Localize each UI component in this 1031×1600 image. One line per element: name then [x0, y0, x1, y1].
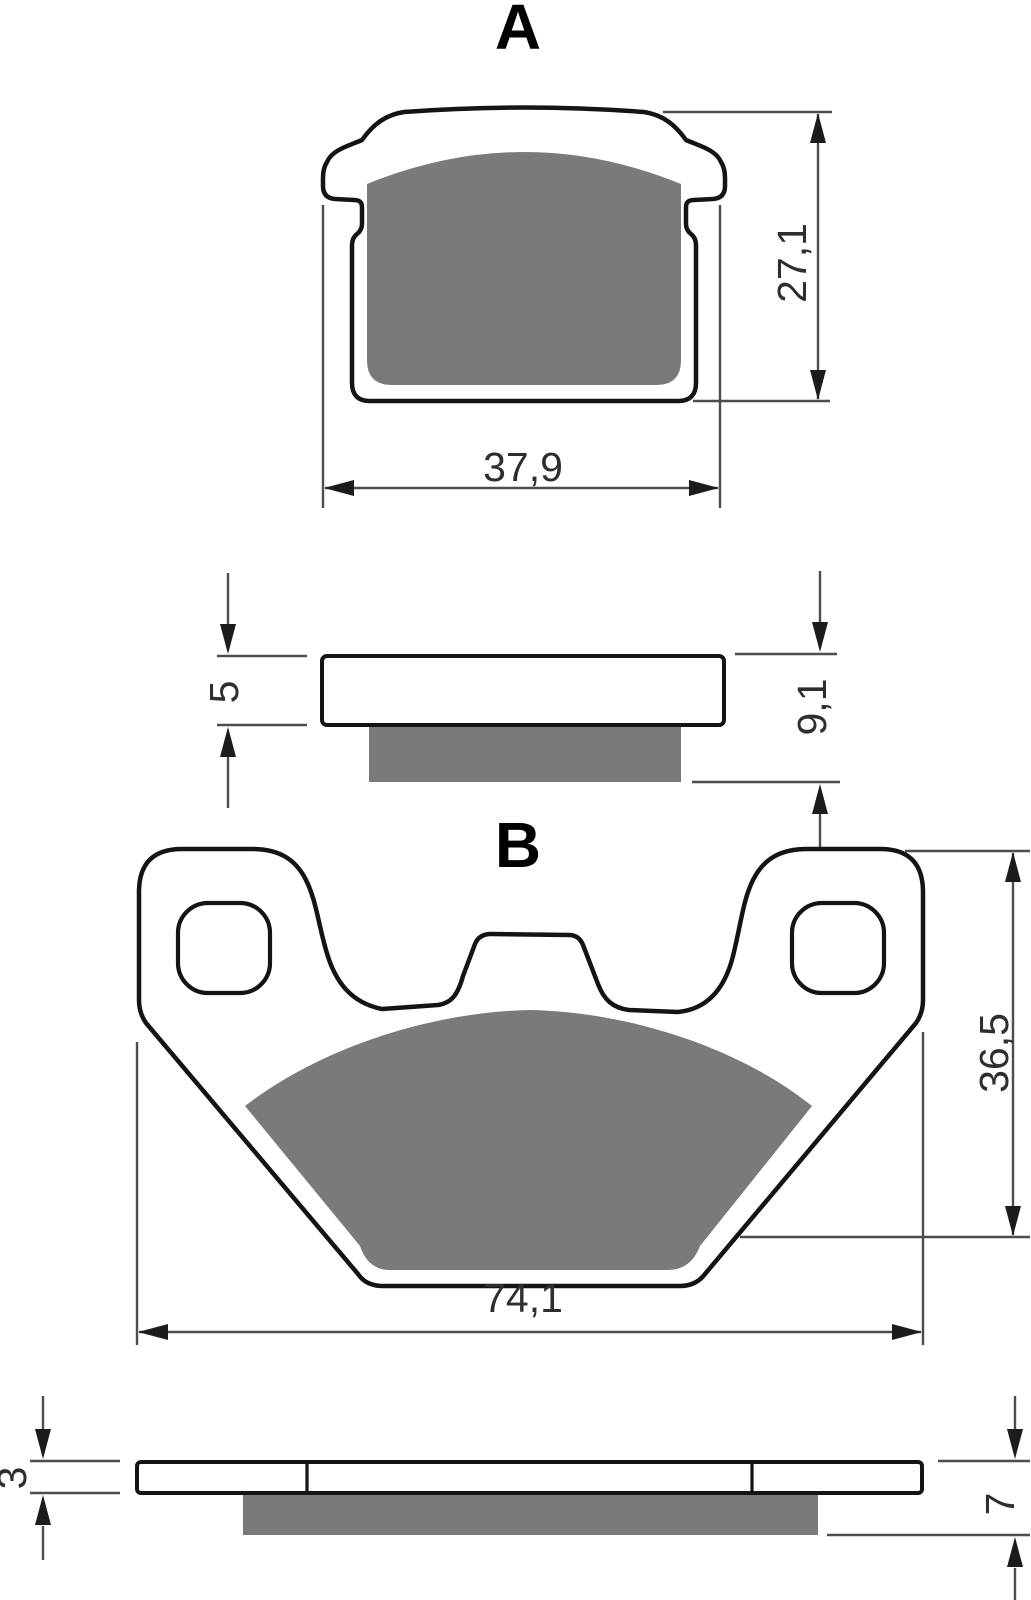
pad-a-height-value: 27,1	[769, 223, 815, 303]
pad-b-height-value: 36,5	[971, 1013, 1017, 1093]
pad-b-side-view: 3 7	[0, 1396, 1030, 1600]
drawing-canvas: A 27,1 37,9	[0, 0, 1031, 1600]
pad-a-friction-material	[367, 152, 681, 385]
pad-b-total-value: 7	[977, 1493, 1023, 1516]
pad-a-backing-value: 5	[201, 681, 247, 704]
pad-b-backing-dimension: 3	[0, 1396, 120, 1560]
brake-pad-technical-drawing: A 27,1 37,9	[0, 0, 1031, 1600]
pad-b-side-friction	[243, 1493, 818, 1535]
pad-a-side-friction	[369, 725, 681, 782]
pad-b-front-view: B 36,5 74,1	[137, 809, 1030, 1345]
pad-b-left-hole	[178, 903, 270, 993]
pad-b-backing-value: 3	[0, 1467, 35, 1490]
pad-a-backing-dimension: 5	[201, 573, 307, 808]
pad-b-side-plate	[137, 1462, 922, 1493]
view-a-label: A	[495, 0, 541, 63]
pad-b-right-hole	[792, 903, 884, 993]
pad-b-total-dimension: 7	[827, 1396, 1030, 1600]
pad-a-side-plate	[322, 656, 724, 725]
pad-b-width-value: 74,1	[483, 1275, 563, 1321]
pad-a-total-value: 9,1	[789, 679, 835, 736]
pad-a-front-view: A 27,1 37,9	[323, 0, 832, 508]
view-b-label: B	[495, 809, 541, 881]
pad-a-width-value: 37,9	[483, 444, 563, 490]
